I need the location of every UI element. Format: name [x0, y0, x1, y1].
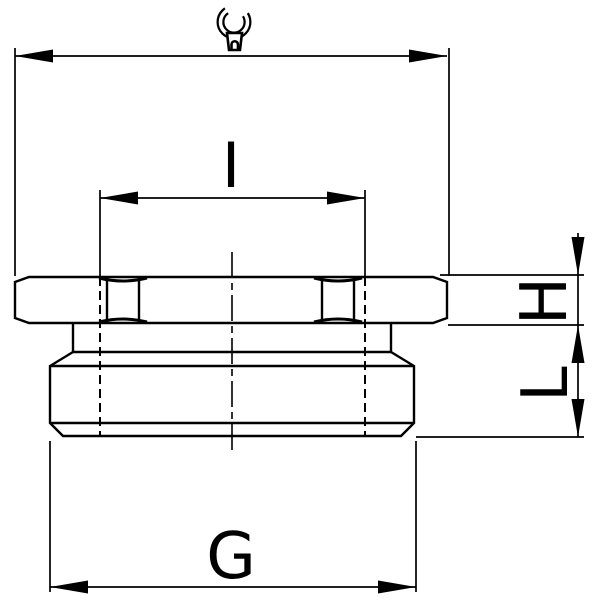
technical-drawing-canvas: I H L	[0, 0, 600, 600]
arrow-right-icon	[327, 192, 365, 205]
wrench-icon	[216, 0, 259, 50]
arrow-right-icon	[409, 50, 447, 63]
arrow-down-icon	[572, 399, 585, 437]
hex-chamfer-arc	[99, 278, 147, 281]
arrow-right-icon	[378, 581, 416, 594]
arrow-left-icon	[50, 581, 88, 594]
arrow-down-icon	[572, 237, 585, 275]
body-length-label: L	[509, 366, 583, 402]
hex-nut-body	[15, 277, 447, 323]
arrow-left-icon	[100, 192, 138, 205]
arrow-left-icon	[15, 50, 53, 63]
hex-nut-outline	[15, 277, 447, 323]
hex-chamfer-arc	[314, 278, 362, 281]
height-dimensions	[416, 233, 585, 437]
hex-chamfer-arc	[99, 319, 147, 322]
thread-diameter-label: G	[206, 520, 256, 594]
hex-height-label: H	[508, 277, 582, 325]
inner-diameter-label: I	[222, 129, 240, 202]
hex-chamfer-arc	[314, 319, 362, 322]
arrow-up-icon	[572, 325, 585, 363]
reducer-adapter-drawing: I H L	[0, 0, 600, 600]
